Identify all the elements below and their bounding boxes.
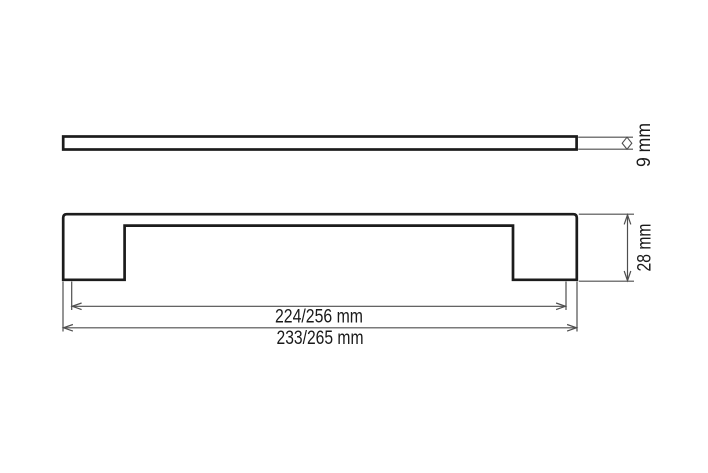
diamond-arrowheads-icon [622,137,632,149]
dimension-bar-thickness: 9 mm [578,123,655,167]
side-view-bar-outline [63,137,576,150]
front-view-handle-outline [63,214,577,280]
part-outlines [63,137,577,280]
dimension-hole-spacing: 224/256 mm [72,282,566,328]
drawing-canvas: 9 mm 28 mm 224/256 mm [0,0,708,473]
handle-technical-drawing: 9 mm 28 mm 224/256 mm [0,0,708,473]
dimension-label-hole-spacing: 224/256 mm [275,307,363,328]
dimension-label-overall-length: 233/265 mm [277,328,364,349]
dimension-handle-height: 28 mm [579,214,656,281]
dimension-label-bar-thickness: 9 mm [634,123,655,167]
dimension-label-handle-height: 28 mm [635,224,656,272]
